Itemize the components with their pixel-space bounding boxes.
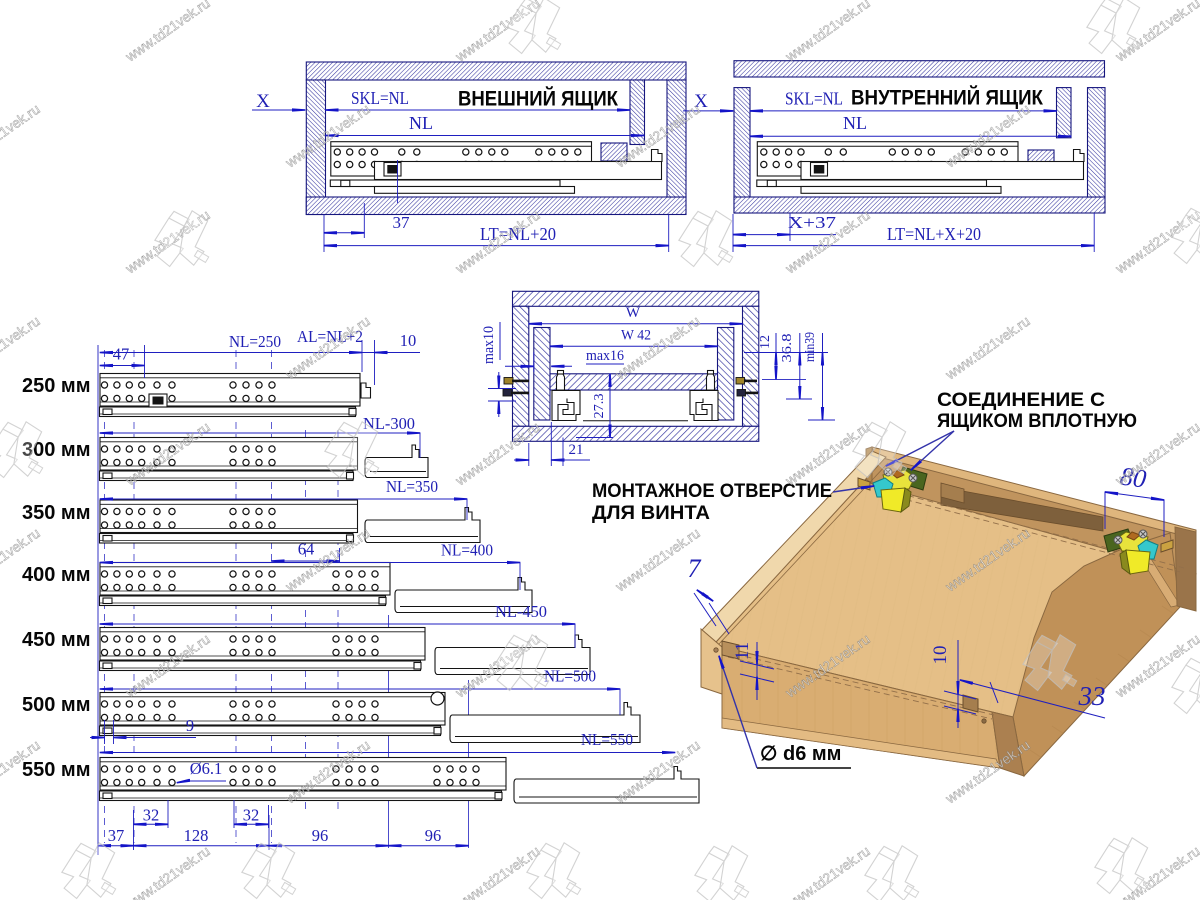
svg-text:12: 12: [758, 335, 773, 349]
svg-text:7: 7: [688, 554, 702, 583]
svg-text:SKL=NL: SKL=NL: [785, 89, 843, 109]
svg-text:ВНЕШНИЙ ЯЩИК: ВНЕШНИЙ ЯЩИК: [458, 86, 619, 111]
svg-text:47: 47: [113, 345, 130, 364]
svg-text:32: 32: [143, 806, 160, 825]
svg-text:X: X: [256, 91, 270, 112]
svg-text:450 мм: 450 мм: [22, 629, 91, 651]
svg-text:LT=NL+X+20: LT=NL+X+20: [887, 224, 981, 244]
svg-text:128: 128: [184, 826, 209, 845]
svg-text:W 42: W 42: [621, 328, 651, 344]
svg-text:32: 32: [243, 806, 260, 825]
svg-text:400 мм: 400 мм: [22, 564, 91, 586]
svg-text:250 мм: 250 мм: [22, 375, 91, 397]
svg-text:96: 96: [425, 826, 442, 845]
svg-text:NL=550: NL=550: [581, 730, 633, 749]
svg-text:W: W: [626, 305, 641, 321]
svg-text:350 мм: 350 мм: [22, 502, 91, 524]
svg-text:11: 11: [732, 642, 753, 660]
svg-text:NL=400: NL=400: [441, 541, 493, 560]
svg-text:X+37: X+37: [788, 213, 837, 232]
svg-text:550 мм: 550 мм: [22, 759, 91, 781]
svg-text:500 мм: 500 мм: [22, 694, 91, 716]
svg-text:21: 21: [569, 442, 584, 458]
svg-text:9: 9: [186, 716, 194, 735]
svg-text:96: 96: [312, 826, 329, 845]
svg-text:37: 37: [108, 826, 125, 845]
svg-text:max10: max10: [481, 326, 497, 364]
svg-text:64: 64: [298, 540, 315, 559]
svg-text:ДЛЯ ВИНТА: ДЛЯ ВИНТА: [592, 503, 710, 524]
svg-text:37: 37: [393, 213, 411, 232]
svg-text:ЯЩИКОМ ВПЛОТНУЮ: ЯЩИКОМ ВПЛОТНУЮ: [937, 411, 1137, 432]
svg-text:min39: min39: [803, 332, 818, 362]
svg-text:∅ d6 мм: ∅ d6 мм: [760, 743, 841, 765]
svg-text:33: 33: [1078, 681, 1106, 711]
svg-text:NL-450: NL-450: [495, 602, 547, 621]
svg-text:СОЕДИНЕНИЕ С: СОЕДИНЕНИЕ С: [937, 390, 1105, 411]
svg-text:NL=350: NL=350: [386, 477, 438, 496]
svg-text:36.8: 36.8: [780, 334, 795, 363]
svg-text:10: 10: [400, 331, 417, 350]
svg-text:NL: NL: [843, 113, 867, 133]
svg-text:27.3: 27.3: [592, 394, 607, 419]
svg-text:max16: max16: [586, 348, 624, 364]
svg-text:Ø6.1: Ø6.1: [190, 759, 223, 778]
svg-text:10: 10: [930, 646, 951, 665]
svg-text:NL=250: NL=250: [229, 332, 281, 351]
svg-text:NL=500: NL=500: [544, 667, 596, 686]
svg-text:NL: NL: [409, 113, 433, 133]
